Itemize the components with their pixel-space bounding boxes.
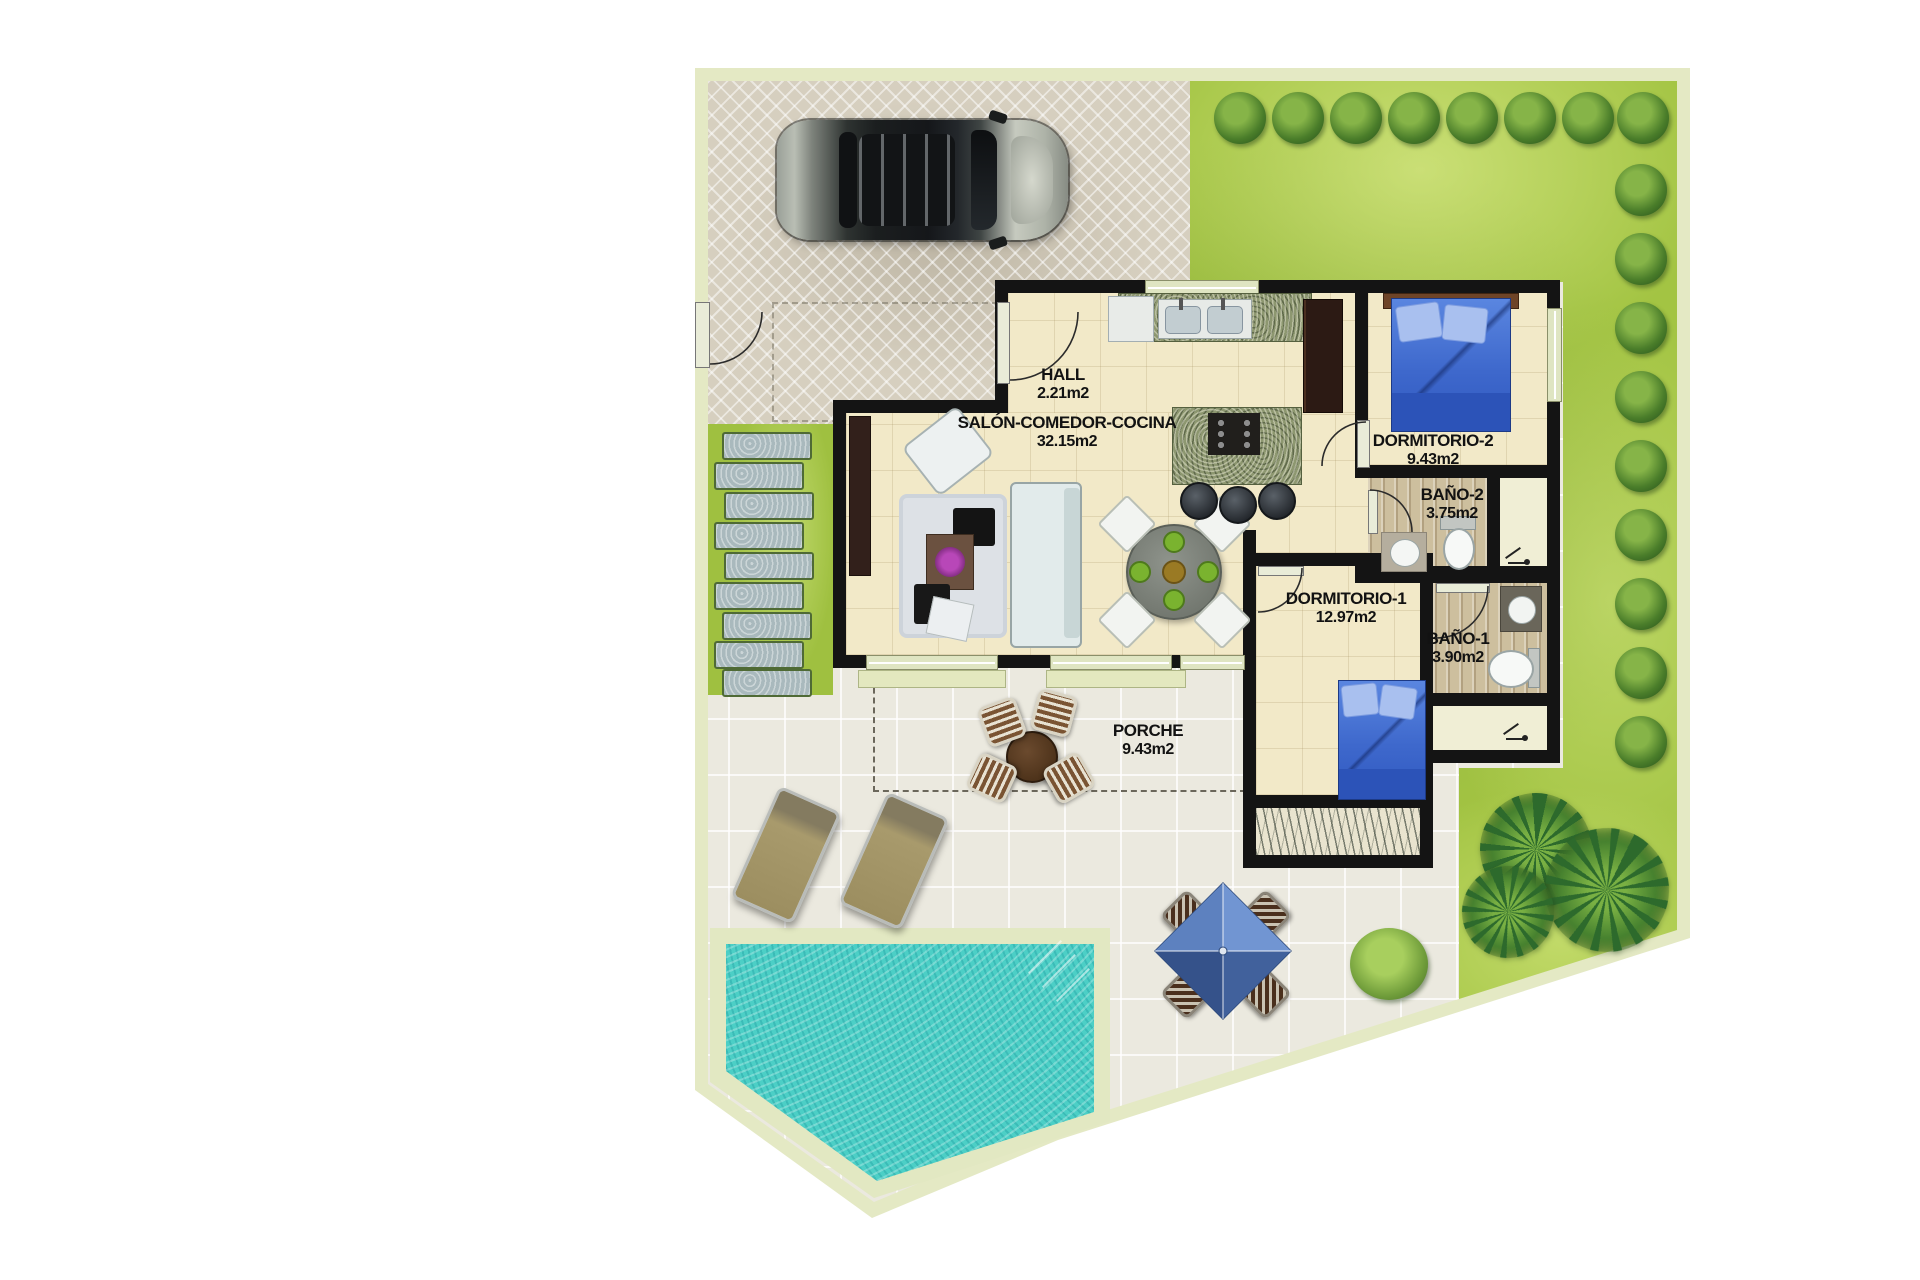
room-area: 9.43m2 bbox=[1373, 451, 1494, 469]
wall-segment bbox=[1433, 693, 1547, 706]
room-label-salon: SALÓN-COMEDOR-COCINA 32.15m2 bbox=[958, 414, 1177, 450]
hedge-bush bbox=[1615, 164, 1667, 216]
hedge-bush bbox=[1446, 92, 1498, 144]
hedge-bush bbox=[1615, 371, 1667, 423]
hedge-bush bbox=[1388, 92, 1440, 144]
hedge-bush bbox=[1617, 92, 1669, 144]
hedge-bush bbox=[1615, 509, 1667, 561]
washbasin-vanity bbox=[1381, 532, 1427, 572]
car-rear-window bbox=[839, 132, 857, 228]
stepping-stone bbox=[722, 669, 812, 697]
room-name: DORMITORIO-2 bbox=[1373, 432, 1494, 451]
bed-footband bbox=[1339, 769, 1425, 799]
coffee-table bbox=[926, 534, 974, 590]
toilet bbox=[1443, 528, 1475, 570]
room-name: BAÑO-2 bbox=[1421, 486, 1484, 505]
room-area: 3.75m2 bbox=[1421, 505, 1484, 523]
car-hood bbox=[1011, 136, 1053, 224]
entrance-door bbox=[997, 302, 1010, 384]
fruit-bowl bbox=[1162, 560, 1186, 584]
sofa-backrest bbox=[1064, 488, 1080, 638]
stepping-stone bbox=[722, 432, 812, 460]
room-name: SALÓN-COMEDOR-COCINA bbox=[958, 414, 1177, 433]
hedge-bush bbox=[1504, 92, 1556, 144]
hedge-bush bbox=[1615, 578, 1667, 630]
washbasin bbox=[1508, 596, 1536, 624]
wall-segment bbox=[1487, 478, 1500, 570]
kitchen-sink bbox=[1158, 299, 1252, 339]
car-roof bbox=[859, 134, 955, 226]
bar-stool bbox=[1258, 482, 1296, 520]
bedroom-window bbox=[1547, 308, 1562, 402]
pillow bbox=[1378, 684, 1418, 721]
flower-centerpiece bbox=[935, 547, 965, 577]
stepping-stone bbox=[722, 612, 812, 640]
plate bbox=[1129, 561, 1151, 583]
room-label-hall: HALL 2.21m2 bbox=[1037, 366, 1089, 402]
wall-segment bbox=[1433, 750, 1560, 763]
pillow bbox=[1441, 304, 1489, 344]
stepping-stone bbox=[724, 552, 814, 580]
room-label-bano2: BAÑO-2 3.75m2 bbox=[1421, 486, 1484, 522]
stepping-stone bbox=[714, 522, 804, 550]
sideboard bbox=[849, 416, 871, 576]
hedge-bush bbox=[1615, 440, 1667, 492]
door-dormitorio2 bbox=[1357, 420, 1370, 468]
room-label-bano1: BAÑO-1 3.90m2 bbox=[1427, 630, 1490, 666]
stepping-stone bbox=[714, 582, 804, 610]
bar-stool bbox=[1180, 482, 1218, 520]
wall-segment bbox=[1243, 530, 1256, 868]
plate bbox=[1197, 561, 1219, 583]
window bbox=[866, 655, 998, 670]
wall-segment bbox=[995, 280, 1560, 293]
washbasin-vanity bbox=[1500, 586, 1542, 632]
window-sill bbox=[1046, 670, 1186, 688]
room-name: DORMITORIO-1 bbox=[1286, 590, 1407, 609]
hedge-bush bbox=[1615, 716, 1667, 768]
room-area: 12.97m2 bbox=[1286, 609, 1407, 627]
room-area: 32.15m2 bbox=[958, 433, 1177, 451]
room-label-dormitorio2: DORMITORIO-2 9.43m2 bbox=[1373, 432, 1494, 468]
stepping-stone bbox=[724, 492, 814, 520]
toilet bbox=[1488, 650, 1534, 688]
washbasin bbox=[1390, 539, 1420, 567]
car bbox=[775, 112, 1070, 248]
room-label-dormitorio1: DORMITORIO-1 12.97m2 bbox=[1286, 590, 1407, 626]
sink-basin bbox=[1207, 306, 1243, 334]
car-windshield bbox=[971, 130, 997, 230]
room-name: HALL bbox=[1037, 366, 1089, 385]
window bbox=[1050, 655, 1172, 670]
bar-stool bbox=[1219, 486, 1257, 524]
faucet bbox=[1221, 298, 1225, 310]
laundry-room-floor bbox=[1433, 706, 1547, 750]
pillow bbox=[1340, 682, 1379, 718]
pillow bbox=[1395, 301, 1444, 343]
porch-door bbox=[1180, 655, 1245, 670]
sofa bbox=[1010, 482, 1082, 648]
faucet bbox=[1179, 298, 1183, 310]
stepping-stone bbox=[714, 641, 804, 669]
hedge-bush bbox=[1562, 92, 1614, 144]
plate bbox=[1163, 589, 1185, 611]
hedge-bush bbox=[1615, 233, 1667, 285]
wall-segment bbox=[833, 413, 846, 668]
hedge-bush bbox=[1615, 302, 1667, 354]
fridge bbox=[1108, 296, 1154, 342]
bed-footband bbox=[1392, 393, 1510, 431]
drain-tap-symbol bbox=[1508, 546, 1528, 564]
window-sill bbox=[858, 670, 1006, 688]
room-area: 2.21m2 bbox=[1037, 385, 1089, 403]
room-name: PORCHE bbox=[1113, 722, 1183, 741]
drain-tap-symbol bbox=[1506, 722, 1526, 740]
room-label-porche: PORCHE 9.43m2 bbox=[1113, 722, 1183, 758]
room-area: 9.43m2 bbox=[1113, 741, 1183, 759]
hedge-bush bbox=[1615, 647, 1667, 699]
rear-terrace-grate bbox=[1256, 808, 1420, 855]
hedge-bush bbox=[1330, 92, 1382, 144]
door-bano1 bbox=[1436, 583, 1490, 593]
plate bbox=[1163, 531, 1185, 553]
room-name: BAÑO-1 bbox=[1427, 630, 1490, 649]
shrub bbox=[1350, 928, 1428, 1000]
cooktop bbox=[1208, 413, 1260, 455]
hedge-bush bbox=[1214, 92, 1266, 144]
room-area: 3.90m2 bbox=[1427, 649, 1490, 667]
stepping-stone bbox=[714, 462, 804, 490]
floor-plan: HALL 2.21m2 SALÓN-COMEDOR-COCINA 32.15m2… bbox=[0, 0, 1920, 1280]
sink-basin bbox=[1165, 306, 1201, 334]
hedge-bush bbox=[1272, 92, 1324, 144]
door-dormitorio1 bbox=[1258, 566, 1304, 576]
wall-segment bbox=[1243, 855, 1433, 868]
garden-gate bbox=[695, 302, 710, 368]
wardrobe bbox=[1303, 299, 1343, 413]
door-bano2 bbox=[1368, 490, 1378, 534]
wall-segment bbox=[833, 400, 1008, 413]
